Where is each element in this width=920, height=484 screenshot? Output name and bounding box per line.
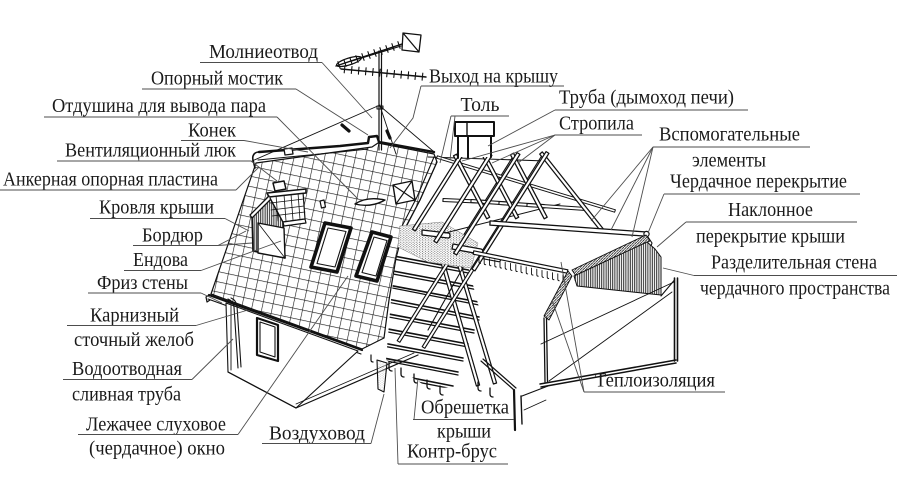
svg-text:Водоотводная: Водоотводная [72, 359, 182, 380]
svg-text:Толь: Толь [461, 95, 500, 116]
svg-text:Фриз стены: Фриз стены [97, 273, 188, 294]
svg-text:Анкерная опорная пластина: Анкерная опорная пластина [3, 170, 218, 191]
svg-text:Молниеотвод: Молниеотвод [209, 42, 318, 63]
svg-text:Разделительная стена: Разделительная стена [711, 253, 877, 274]
svg-text:Обрешетка: Обрешетка [421, 398, 509, 419]
svg-text:Опорный мостик: Опорный мостик [151, 69, 283, 90]
svg-text:Бордюр: Бордюр [142, 226, 203, 247]
svg-text:Контр-брус: Контр-брус [407, 442, 497, 463]
svg-text:Воздуховод: Воздуховод [269, 424, 365, 445]
svg-text:Отдушина для вывода пара: Отдушина для вывода пара [52, 96, 266, 117]
svg-text:Выход на крышу: Выход на крышу [429, 67, 558, 88]
svg-text:Лежачее слуховое: Лежачее слуховое [86, 415, 226, 436]
svg-text:крыши: крыши [437, 422, 491, 443]
svg-text:Кровля крыши: Кровля крыши [99, 198, 214, 219]
svg-text:Теплоизоляция: Теплоизоляция [595, 371, 715, 392]
svg-text:Конек: Конек [188, 121, 236, 142]
svg-text:Вентиляционный люк: Вентиляционный люк [65, 141, 236, 162]
svg-text:сточный желоб: сточный желоб [74, 330, 194, 351]
svg-text:Вспомогательные: Вспомогательные [659, 125, 800, 146]
svg-text:чердачного пространства: чердачного пространства [700, 279, 890, 300]
svg-text:перекрытие крыши: перекрытие крыши [696, 227, 845, 248]
svg-text:Стропила: Стропила [559, 114, 634, 135]
svg-text:элементы: элементы [692, 151, 766, 172]
svg-text:Ендова: Ендова [133, 250, 188, 271]
svg-text:Труба (дымоход печи): Труба (дымоход печи) [559, 88, 734, 109]
svg-text:сливная труба: сливная труба [72, 385, 181, 406]
svg-text:Карнизный: Карнизный [90, 306, 179, 327]
svg-text:Наклонное: Наклонное [728, 200, 813, 221]
svg-text:(чердачное) окно: (чердачное) окно [89, 439, 225, 460]
svg-text:Чердачное перекрытие: Чердачное перекрытие [670, 172, 847, 193]
